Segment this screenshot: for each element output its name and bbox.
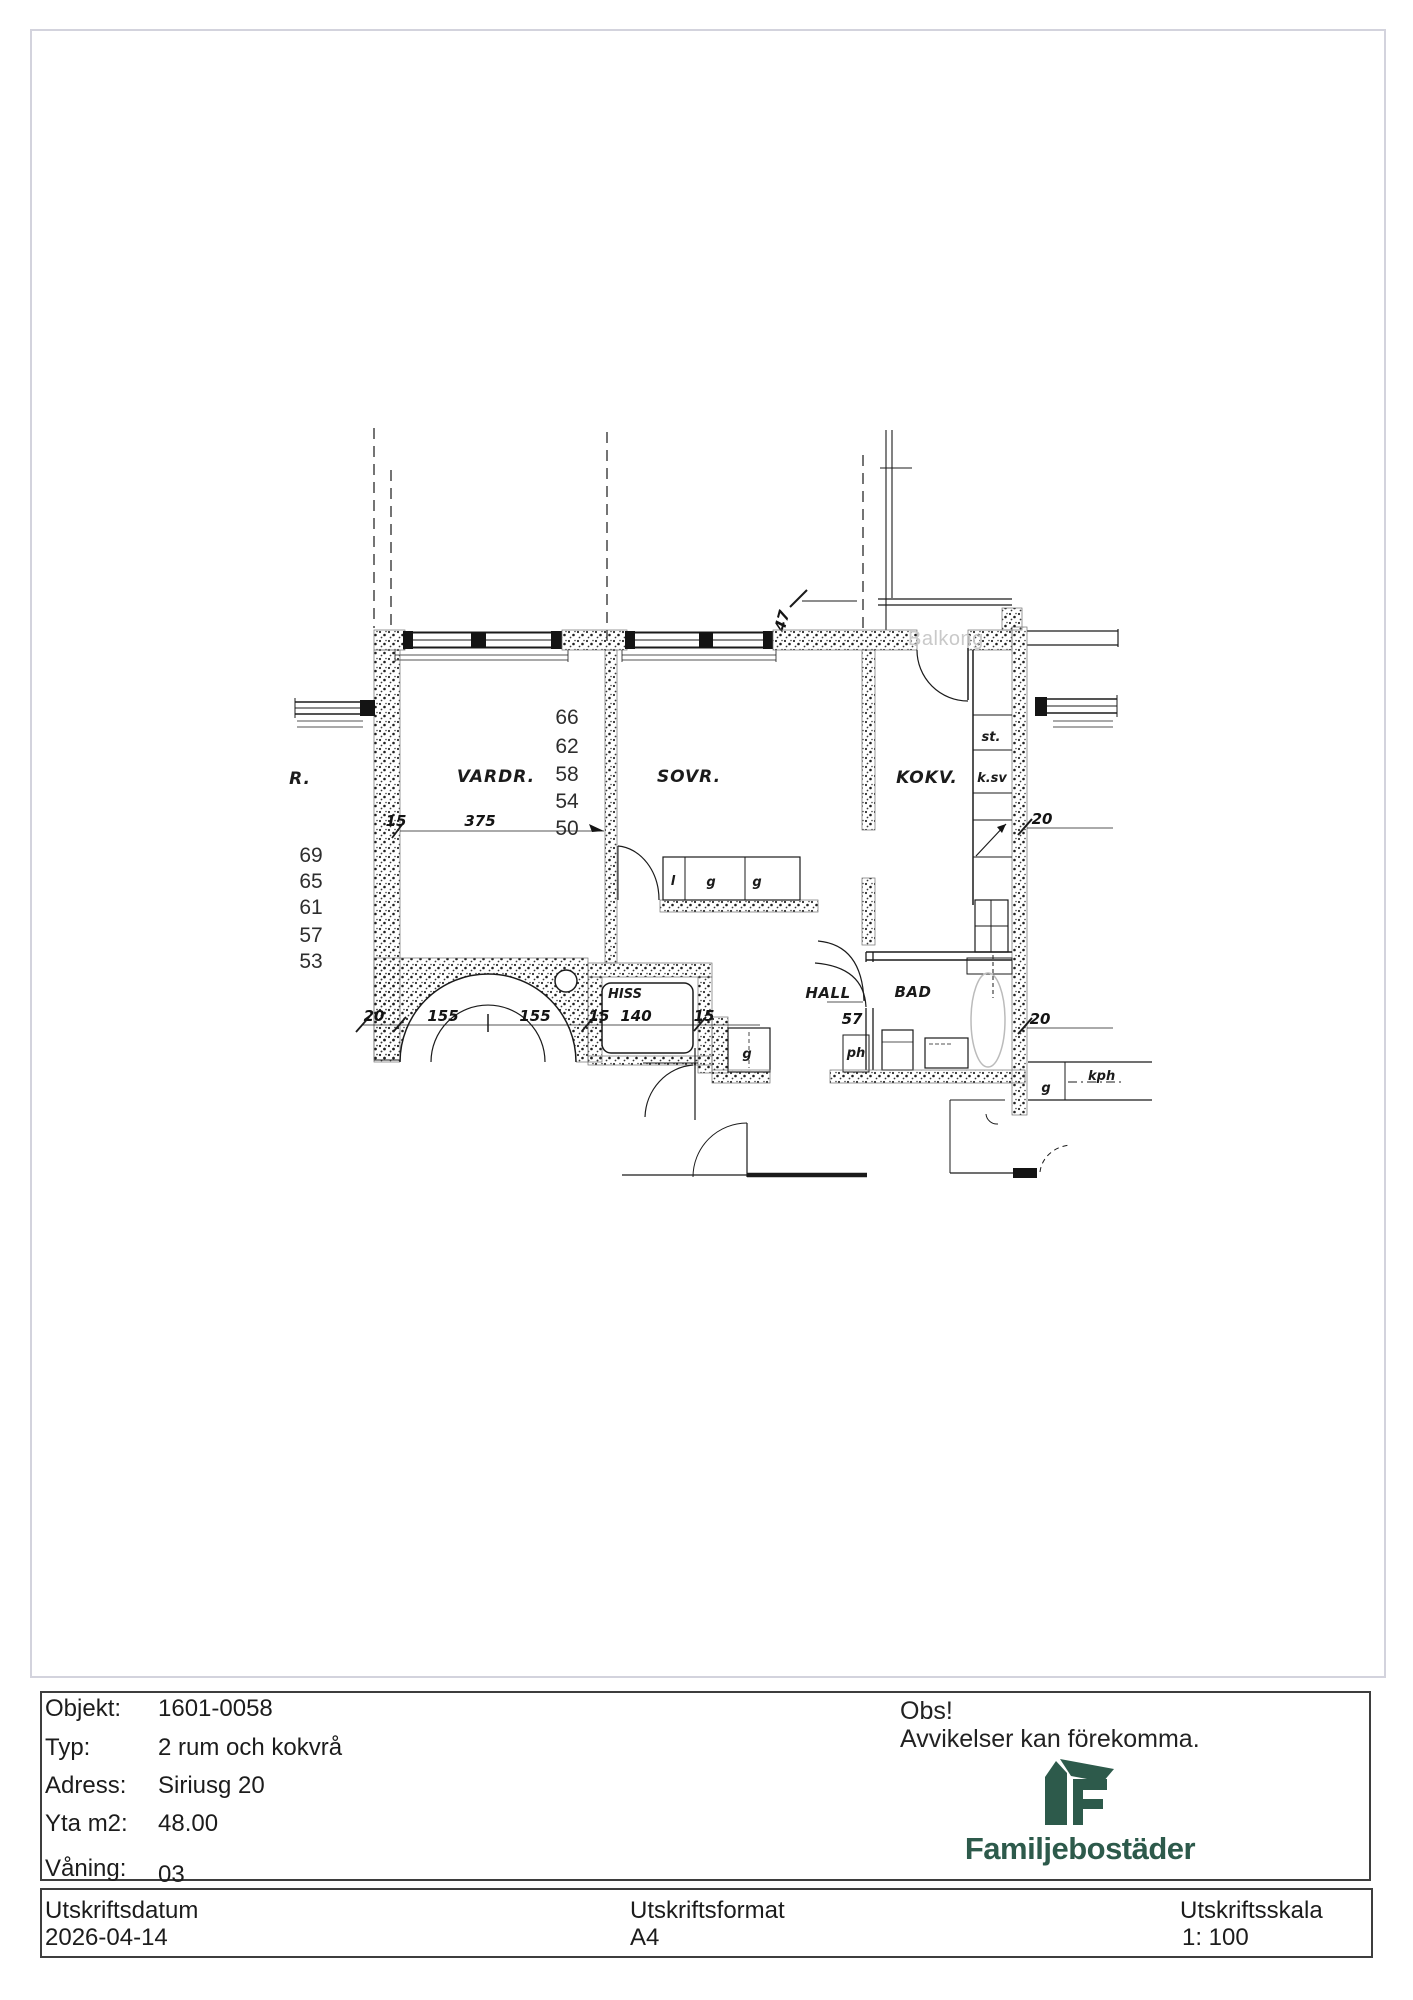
svg-text:15: 15 bbox=[694, 1007, 715, 1025]
svg-text:g: g bbox=[752, 875, 761, 890]
svg-text:20: 20 bbox=[1032, 810, 1053, 828]
neighbor-window-left bbox=[295, 698, 375, 727]
svg-text:20: 20 bbox=[364, 1007, 385, 1025]
familjebostader-logo-icon bbox=[1038, 1752, 1122, 1828]
svg-text:g: g bbox=[706, 875, 715, 890]
info-value-vaning: 03 bbox=[158, 1861, 185, 1889]
svg-text:58: 58 bbox=[555, 763, 578, 786]
svg-text:140: 140 bbox=[620, 1007, 651, 1025]
svg-text:54: 54 bbox=[555, 790, 579, 813]
construction-lines bbox=[374, 428, 912, 648]
print-date-label: Utskriftsdatum bbox=[45, 1897, 198, 1925]
north-wall bbox=[374, 629, 1118, 662]
info-value-objekt: 1601-0058 bbox=[158, 1695, 273, 1723]
sovr-hall-wall bbox=[618, 846, 818, 912]
info-label-yta: Yta m2: bbox=[45, 1810, 128, 1838]
svg-text:15: 15 bbox=[589, 1007, 610, 1025]
closet-ph-label: ph bbox=[846, 1046, 866, 1061]
sovr-closets: l g g bbox=[663, 857, 800, 900]
notice-block: Obs! Avvikelser kan förekomma. bbox=[900, 1697, 1200, 1753]
closet-g-label: g bbox=[742, 1047, 751, 1062]
print-format-value: A4 bbox=[630, 1924, 659, 1952]
south-wall-left bbox=[712, 1070, 770, 1083]
sink bbox=[925, 1038, 968, 1068]
info-value-adress: Siriusg 20 bbox=[158, 1772, 265, 1800]
info-label-vaning: Våning: bbox=[45, 1855, 126, 1883]
apartment-number-column-left: 69 65 61 57 53 bbox=[299, 844, 322, 973]
dim-57-label: 57 bbox=[842, 1010, 863, 1028]
dim-47: 47 bbox=[771, 590, 857, 634]
room-neighbor-label: R. bbox=[289, 769, 311, 789]
room-vardr-label: VARDR. bbox=[457, 767, 535, 787]
balcony-label: Balkong bbox=[908, 628, 984, 650]
svg-text:69: 69 bbox=[299, 844, 322, 867]
stair-curve bbox=[374, 958, 588, 1150]
svg-text:53: 53 bbox=[299, 950, 322, 973]
notice-text: Avvikelser kan förekomma. bbox=[900, 1725, 1200, 1753]
service-shaft: st. k.sv bbox=[973, 650, 1012, 998]
room-bad-label: BAD bbox=[895, 983, 932, 1001]
svg-text:l: l bbox=[671, 874, 676, 889]
floorplan-drawing: 47 bbox=[0, 0, 1413, 1680]
kokv-bad-wall bbox=[866, 952, 1012, 960]
svg-text:20: 20 bbox=[1030, 1010, 1051, 1028]
bathtub bbox=[971, 973, 1005, 1067]
shaft-ksv-label: k.sv bbox=[977, 771, 1007, 786]
column bbox=[555, 970, 577, 992]
notice-title: Obs! bbox=[900, 1697, 1200, 1725]
svg-text:57: 57 bbox=[299, 924, 322, 947]
elevator-label: HISS bbox=[608, 987, 642, 1002]
bathroom-fixtures bbox=[882, 958, 1012, 1070]
svg-text:61: 61 bbox=[299, 896, 322, 919]
svg-text:155: 155 bbox=[427, 1007, 458, 1025]
svg-text:50: 50 bbox=[555, 817, 578, 840]
room-hall-label: HALL bbox=[805, 984, 850, 1002]
elevator-shaft: HISS bbox=[588, 963, 712, 1120]
info-value-yta: 48.00 bbox=[158, 1810, 218, 1838]
print-date-value: 2026-04-14 bbox=[45, 1924, 168, 1952]
svg-text:155: 155 bbox=[519, 1007, 550, 1025]
apartment-number-column-right: 66 62 58 54 50 bbox=[555, 706, 579, 840]
svg-text:65: 65 bbox=[299, 870, 322, 893]
svg-text:375: 375 bbox=[464, 812, 495, 830]
info-label-objekt: Objekt: bbox=[45, 1695, 121, 1723]
info-label-typ: Typ: bbox=[45, 1734, 90, 1762]
print-scale-label: Utskriftsskala bbox=[1180, 1897, 1323, 1925]
svg-text:15: 15 bbox=[386, 812, 407, 830]
print-scale-value: 1: 100 bbox=[1182, 1924, 1249, 1952]
kph-closet: g kph bbox=[1028, 1062, 1152, 1100]
room-kokv-label: KOKV. bbox=[896, 768, 958, 788]
svg-text:62: 62 bbox=[555, 735, 578, 758]
svg-text:66: 66 bbox=[555, 706, 578, 729]
info-label-adress: Adress: bbox=[45, 1772, 126, 1800]
closet-kph-label: kph bbox=[1088, 1069, 1115, 1084]
south-wall-right bbox=[830, 1070, 1025, 1083]
closet-g2-label: g bbox=[1041, 1081, 1050, 1096]
brand-name: Familjebostäder bbox=[930, 1831, 1230, 1867]
entrance bbox=[622, 1100, 1071, 1178]
dim-20-right: 20 20 bbox=[1018, 810, 1113, 1034]
neighbor-window-right bbox=[1035, 695, 1117, 727]
info-value-typ: 2 rum och kokvrå bbox=[158, 1734, 342, 1762]
room-sovr-label: SOVR. bbox=[657, 767, 721, 787]
toilet bbox=[882, 1030, 913, 1070]
hall-bad-divider: 57 ph bbox=[815, 941, 873, 1072]
document-page: 47 bbox=[0, 0, 1413, 2000]
shaft-st-label: st. bbox=[982, 730, 1001, 745]
print-format-label: Utskriftsformat bbox=[630, 1897, 785, 1925]
